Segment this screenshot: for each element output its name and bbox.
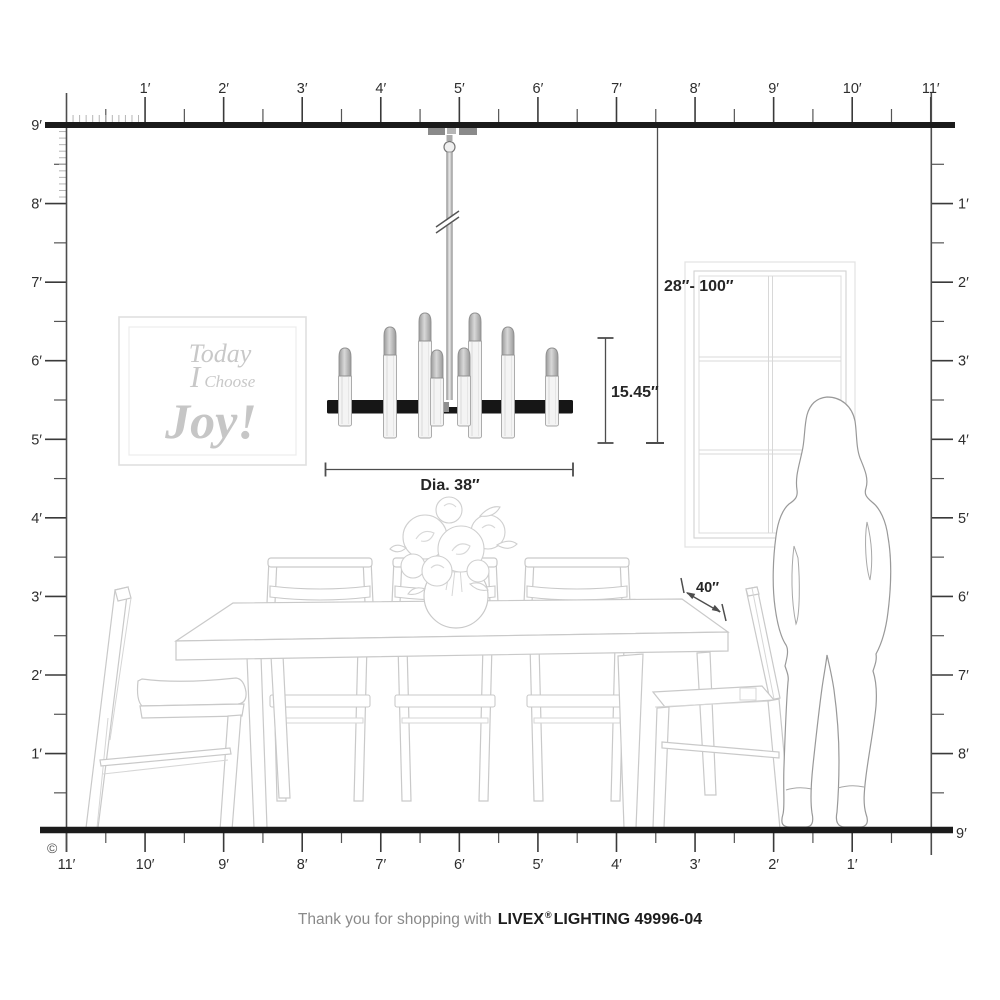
hanging-range-label: 28″- 100″ [664,278,734,295]
candle-light [546,348,559,426]
table-leg [271,655,290,798]
ruler-label-top: 6′ [533,81,544,97]
ruler-label-bottom: 8′ [297,857,308,873]
canopy-center [447,127,456,134]
table-leg [697,652,716,795]
ruler-label-top: 9′ [768,81,779,97]
product-dimension-diagram: Today IChoose Joy! [0,0,1000,1000]
ruler-label-top: 10′ [843,81,862,97]
ruler-label-top: 2′ [218,81,229,97]
ruler-label-bottom: 5′ [533,857,544,873]
scene-canvas: Today IChoose Joy! [0,0,1000,1000]
candle-light [384,327,397,438]
ruler-label-bottom: 7′ [375,857,386,873]
fixture-height-label: 15.45″ [611,384,659,401]
ruler-label-left: 3′ [31,589,42,605]
ruler-label-bottom: 1′ [847,857,858,873]
ruler-label-right: 7′ [958,668,969,684]
canopy [428,127,445,135]
candle-light [419,313,432,438]
ruler-label-top: 11′ [922,81,940,97]
ruler-label-right: 3′ [958,354,969,370]
candle-body [546,375,559,426]
ruler-label-top: 3′ [297,81,308,97]
ruler-label-right: 8′ [958,747,969,763]
table-depth-label: 40″ [696,580,719,596]
ruler-label-top: 7′ [611,81,622,97]
dining-table [176,599,728,828]
ruler-label-left: 1′ [31,747,42,763]
dining-chair-back [524,558,630,801]
chair-stretcher [534,718,620,723]
ruler-label-bottom: 3′ [690,857,701,873]
candle-light [339,348,352,426]
candle-light [502,327,515,438]
bulb [469,313,481,341]
bulb [502,327,514,355]
ruler-label-right: 5′ [958,511,969,527]
ruler-label-top: 1′ [140,81,151,97]
ruler-label-bottom: 6′ [454,857,465,873]
downrod [447,152,452,403]
ruler-label-left: 8′ [31,197,42,213]
chair-back-band [527,586,627,600]
footer-text: Thank you for shopping withLIVEX®LIGHTIN… [298,910,702,928]
bulb [431,350,443,378]
candle-body [384,354,397,438]
chair-stretcher [277,718,363,723]
ruler-label-left: 2′ [31,668,42,684]
ruler-label-right-9ft: 9′ [956,826,967,842]
ruler-label-bottom: 2′ [768,857,779,873]
candle-light [458,348,471,426]
ruler-label-bottom: 11′ [58,857,76,873]
candle-body [339,375,352,426]
fixture-diameter-label: Dia. 38″ [420,477,480,494]
ruler-label-top: 4′ [375,81,386,97]
bulb [458,348,470,376]
woman-silhouette [773,397,890,827]
table-leg [247,656,267,828]
ruler-label-top: 8′ [690,81,701,97]
ruler-label-right: 4′ [958,432,969,448]
arrowhead [712,605,721,612]
chair-stretcher [402,718,488,723]
ruler-label-left: 6′ [31,354,42,370]
chair-top-rail [525,558,629,567]
ruler-label-bottom: 9′ [218,857,229,873]
arrowhead [686,592,695,599]
ruler-label-bottom: 4′ [611,857,622,873]
ruler-label-bottom: 10′ [136,857,155,873]
ruler-label-left: 7′ [31,275,42,291]
chair-top-rail [268,558,372,567]
wall-art-line3: Joy! [164,393,257,449]
ruler-label-left: 9′ [31,118,42,134]
ruler-label-right: 2′ [958,275,969,291]
candle-body [419,340,432,438]
candle-body [431,377,444,426]
swivel-ball [444,142,455,153]
chair-seat [527,695,627,707]
bulb [419,313,431,341]
wall-art-frame: Today IChoose Joy! [119,317,306,465]
ruler-label-left: 5′ [31,432,42,448]
table-leg [618,654,643,828]
copyright-symbol: © [47,840,58,856]
stem [447,135,453,141]
ruler-label-top: 5′ [454,81,465,97]
chair-seat [395,695,495,707]
candle-light [431,350,444,426]
canopy [459,127,477,135]
chandelier [327,127,573,438]
bulb [339,348,351,376]
candle-body [502,354,515,438]
ruler-label-left: 4′ [31,511,42,527]
chair-back-band [270,586,370,600]
bulb [546,348,558,376]
bulb [384,327,396,355]
ruler-label-right: 1′ [958,197,969,213]
ruler-label-right: 6′ [958,589,969,605]
candle-body [458,375,471,426]
